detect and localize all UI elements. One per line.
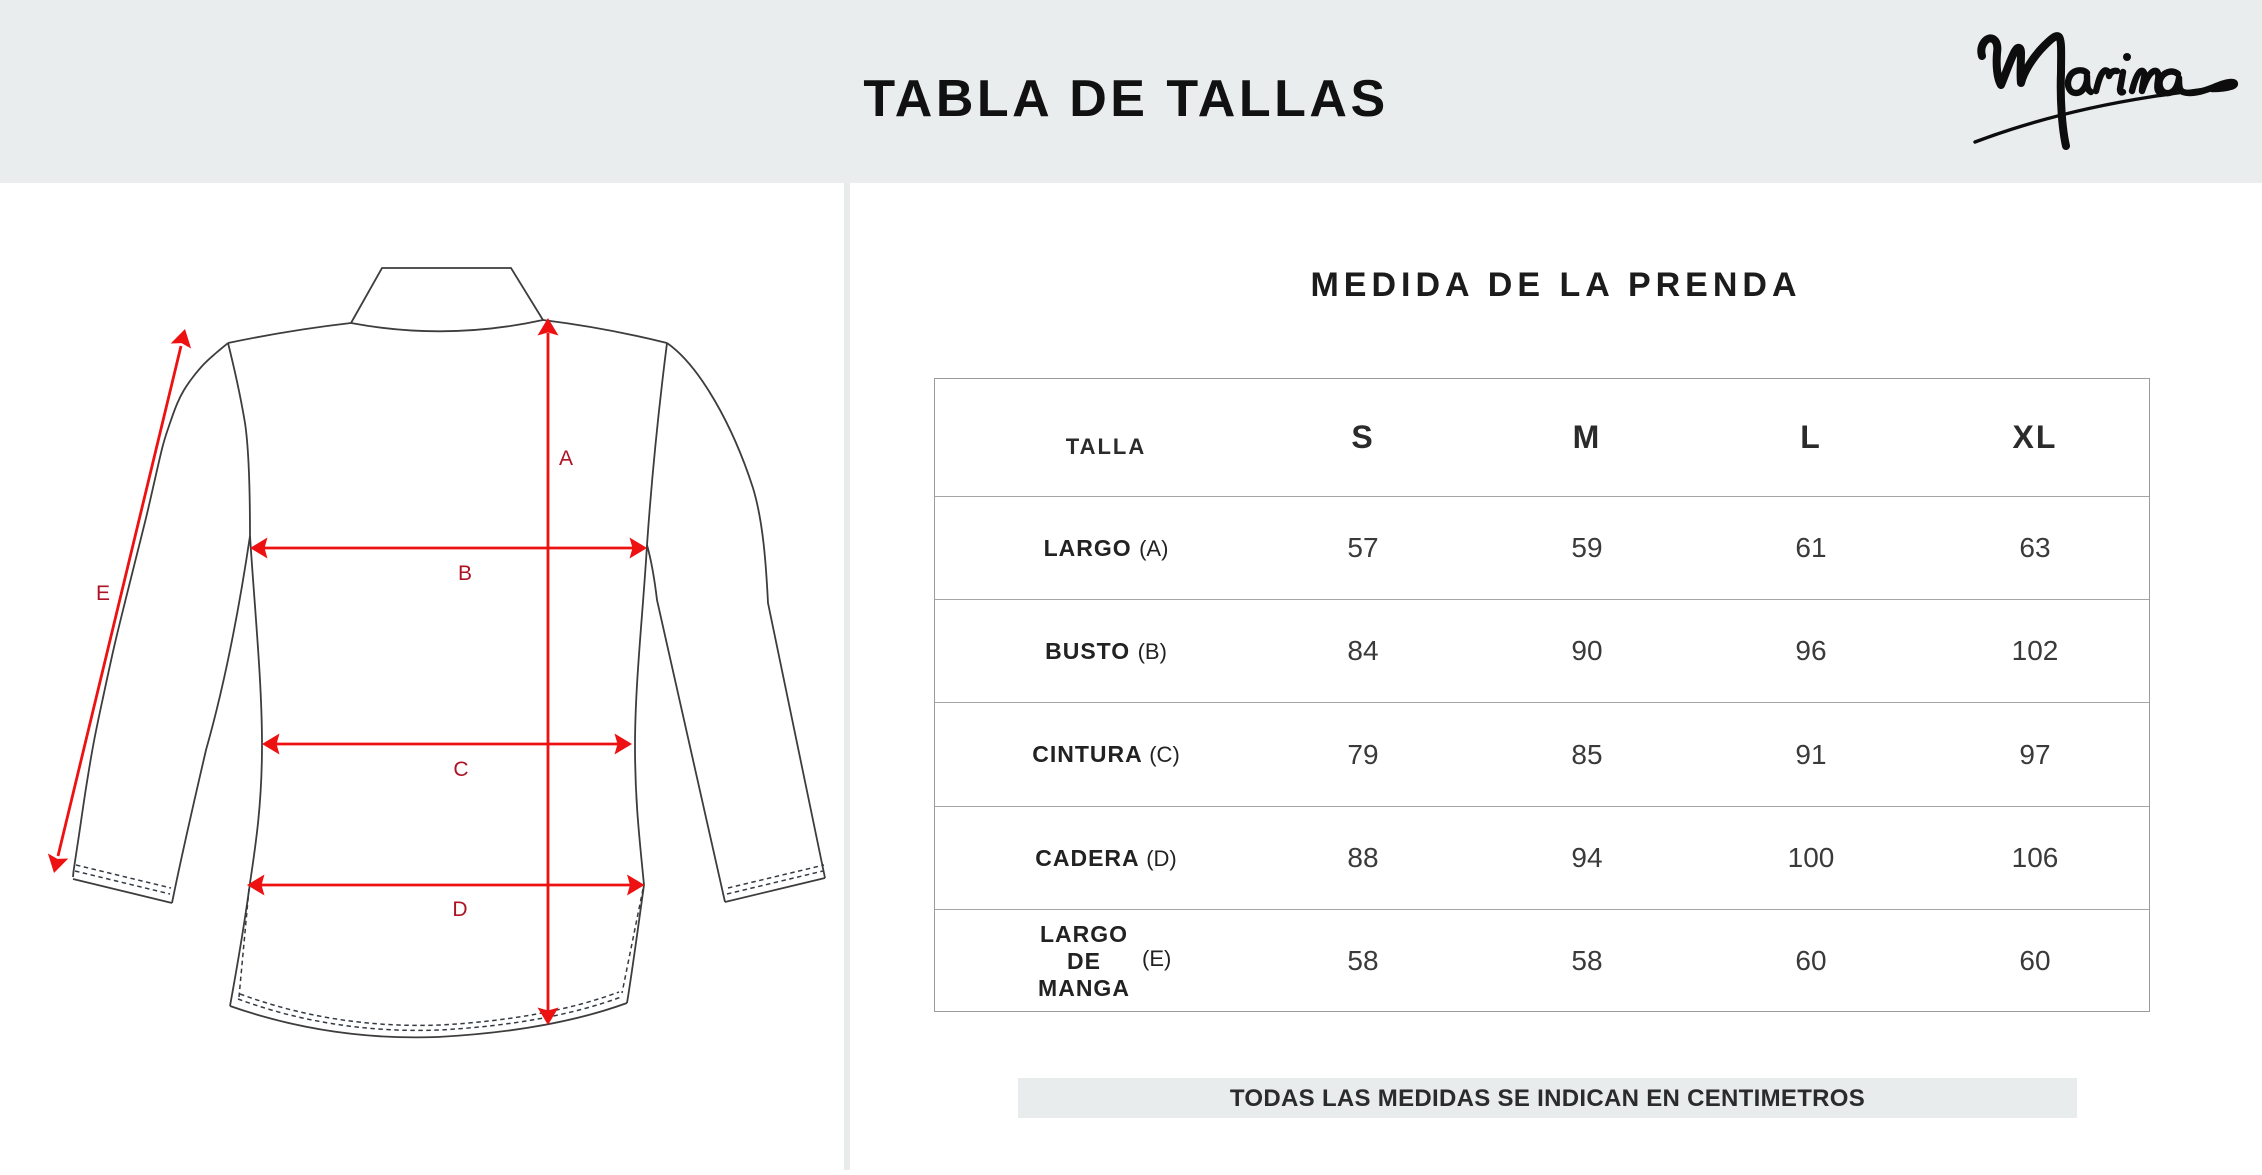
svg-text:A: A bbox=[559, 447, 573, 470]
svg-text:C: C bbox=[453, 758, 468, 781]
svg-text:B: B bbox=[458, 562, 472, 585]
svg-text:D: D bbox=[452, 898, 467, 921]
svg-text:E: E bbox=[96, 582, 110, 605]
